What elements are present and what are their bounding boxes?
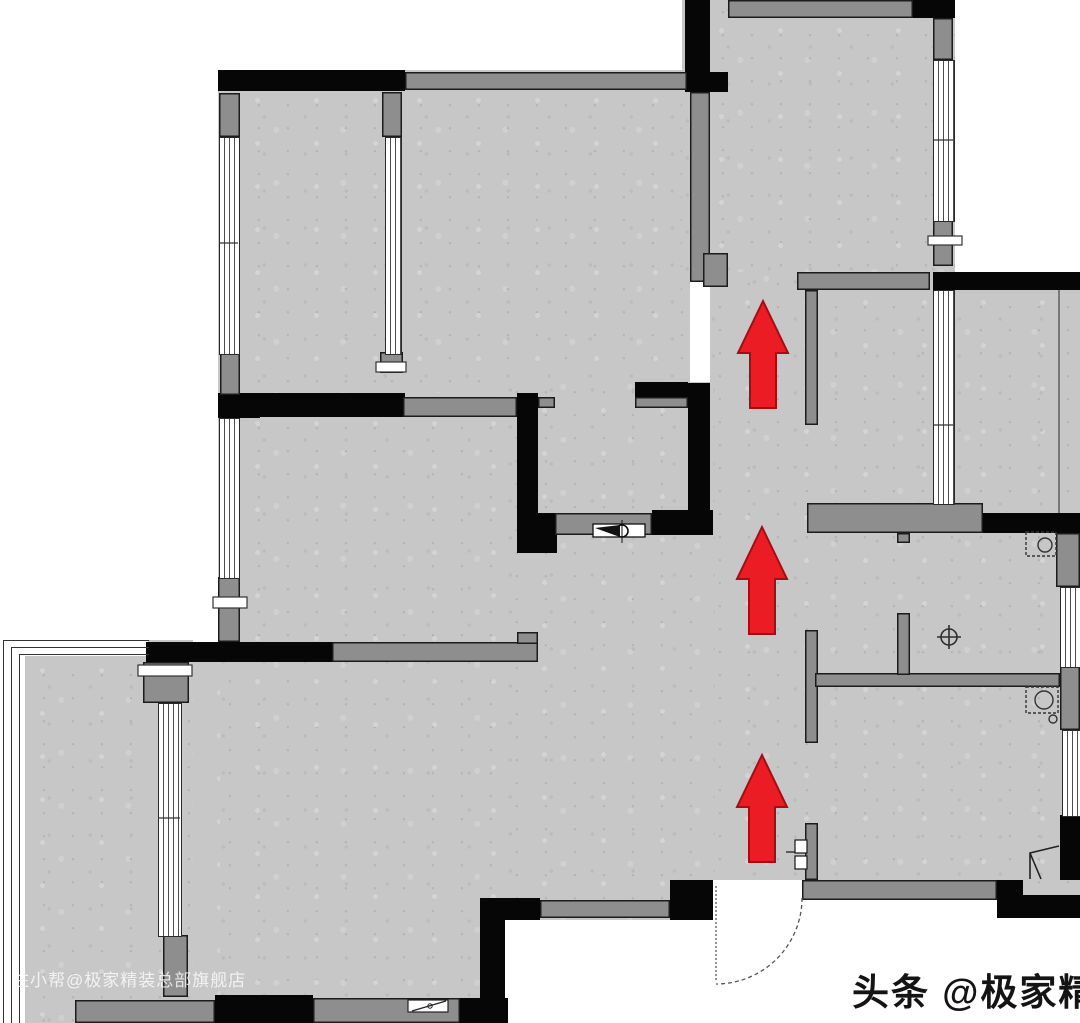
window xyxy=(219,418,240,579)
window xyxy=(933,60,955,222)
wall-segment xyxy=(897,613,910,675)
wall-segment xyxy=(218,70,405,91)
wall-segment xyxy=(815,673,1060,687)
wall-segment xyxy=(703,253,728,287)
wall-segment xyxy=(635,382,688,398)
wall-segment xyxy=(933,220,953,266)
wall-segment xyxy=(146,642,332,662)
wall-segment xyxy=(1060,666,1080,730)
entry-door-opening xyxy=(713,880,802,920)
wall-segment xyxy=(313,998,460,1023)
wall-segment xyxy=(143,662,189,703)
wall-segment xyxy=(670,880,713,920)
wall-segment xyxy=(220,353,240,395)
wall-segment xyxy=(983,513,1080,533)
wall-segment xyxy=(933,18,953,60)
window xyxy=(385,137,402,355)
wall-segment xyxy=(807,503,983,533)
wall-segment xyxy=(802,880,997,900)
wall-segment xyxy=(805,290,818,425)
window xyxy=(1060,587,1080,668)
wall-segment xyxy=(913,0,955,18)
wall-segment xyxy=(403,397,517,417)
brand-caption: 头条 @极家精装 xyxy=(852,962,1080,1016)
wall-segment xyxy=(219,93,240,137)
wall-segment xyxy=(218,395,260,418)
wall-segment xyxy=(382,92,402,137)
wall-segment xyxy=(218,577,240,642)
wall-segment xyxy=(215,995,313,1023)
wall-segment xyxy=(517,632,538,644)
wall-segment xyxy=(517,393,538,553)
watermark-text: 住小帮@极家精装总部旗舰店 xyxy=(12,966,246,991)
wall-segment xyxy=(685,72,728,92)
wall-segment xyxy=(700,510,713,535)
wall-segment xyxy=(1056,533,1080,587)
room-floor-bedroom-2 xyxy=(380,70,710,420)
wall-segment xyxy=(405,72,687,90)
room-floor-right-wing xyxy=(708,272,1080,900)
wall-segment xyxy=(332,642,538,662)
window xyxy=(219,137,240,355)
wall-segment xyxy=(555,513,652,535)
wall-segment xyxy=(805,823,818,880)
wall-segment xyxy=(538,397,555,408)
wall-segment xyxy=(380,352,403,373)
wall-segment xyxy=(480,898,540,920)
wall-segment xyxy=(897,533,910,543)
entry-outside-area xyxy=(505,920,715,1023)
room-floor-top-right xyxy=(682,0,955,292)
bedroom2-door-opening xyxy=(690,282,710,382)
wall-segment xyxy=(540,900,670,918)
balcony-sliding-door xyxy=(158,703,182,937)
wall-segment xyxy=(1060,815,1080,880)
glass-partition xyxy=(933,290,955,505)
wall-segment xyxy=(728,0,913,18)
window xyxy=(1062,730,1080,817)
wall-segment xyxy=(797,272,930,290)
floor-plan: 住小帮@极家精装总部旗舰店 头条 @极家精装 xyxy=(0,0,1080,1023)
wall-segment xyxy=(685,0,710,72)
wall-segment xyxy=(1023,895,1080,918)
wall-segment xyxy=(997,880,1023,918)
wall-segment xyxy=(933,272,1080,290)
wall-segment xyxy=(635,397,688,408)
wall-segment xyxy=(688,383,710,516)
